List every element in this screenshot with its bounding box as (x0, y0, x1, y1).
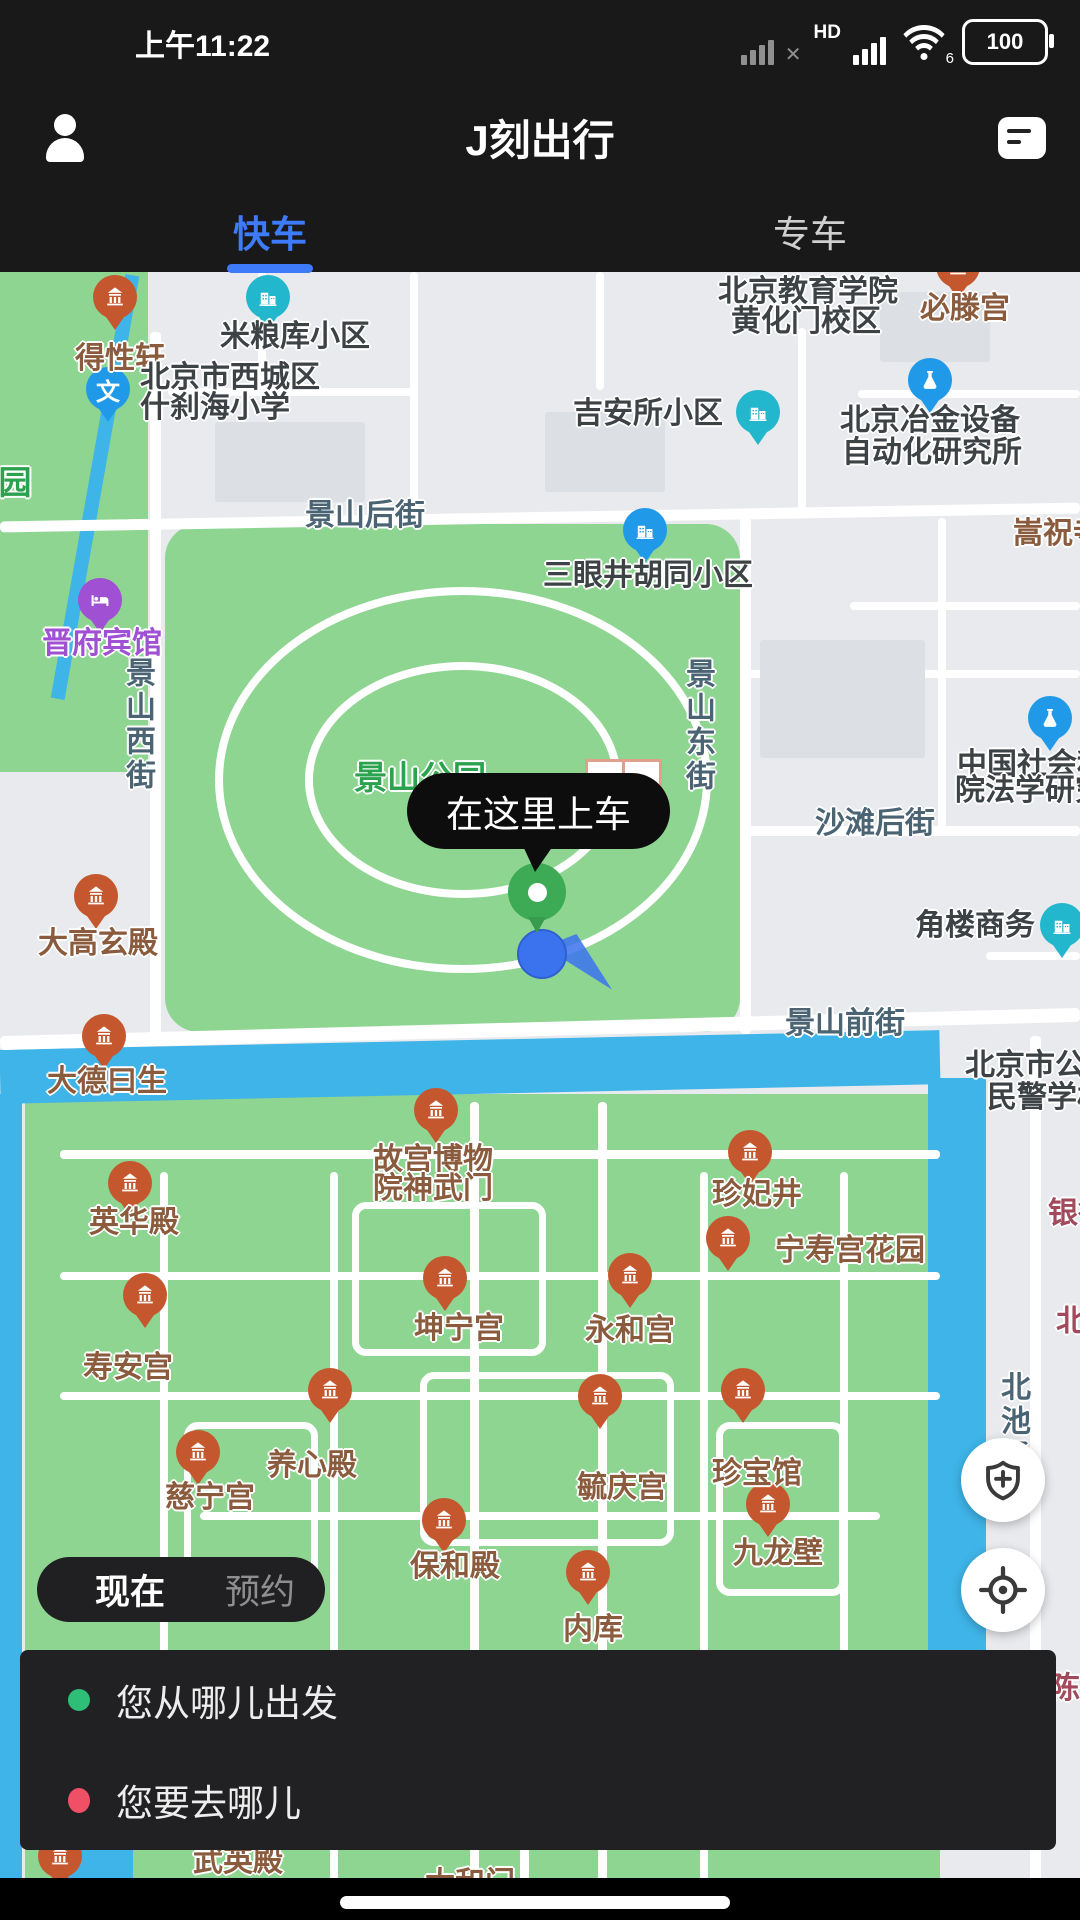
hd-badge: HD (814, 23, 841, 42)
crosshair-icon (978, 1565, 1028, 1615)
origin-input[interactable]: 您从哪儿出发 (20, 1650, 1056, 1750)
poi-pin-temple-icon[interactable] (422, 1498, 466, 1542)
map-label: 景山东街 (675, 658, 719, 794)
poi-pin-temple-icon[interactable] (706, 1216, 750, 1260)
active-tab-underline (227, 264, 313, 273)
profile-person-icon[interactable] (43, 112, 87, 164)
map-label: 珍宝馆 (712, 1448, 802, 1492)
poi-pin-temple-icon[interactable] (74, 874, 118, 918)
current-location-icon (517, 929, 567, 979)
map-road (60, 1150, 940, 1159)
poi-pin-temple-icon[interactable] (423, 1256, 467, 1300)
map-road (850, 602, 1080, 610)
map-building-block (760, 640, 925, 758)
map-label: 慈宁宫 (165, 1472, 255, 1516)
poi-pin-temple-icon[interactable] (123, 1273, 167, 1317)
origin-placeholder: 您从哪儿出发 (116, 1673, 338, 1727)
poi-pin-hotel-icon[interactable] (78, 578, 122, 622)
destination-input[interactable]: 您要去哪儿 (20, 1750, 1056, 1850)
wifi-icon: 6 (898, 25, 950, 65)
map-label: 九龙壁 (733, 1528, 823, 1572)
map-label: 北新 (1056, 1296, 1080, 1340)
map-label: 大德曰生 (47, 1056, 167, 1100)
map-label: 院法学研究 (955, 765, 1080, 809)
map-label: 寿安宫 (83, 1342, 173, 1386)
map-label: 坤宁宫 (414, 1303, 504, 1347)
battery-icon: 100 (962, 19, 1048, 65)
no-service-x-icon: ✕ (785, 45, 802, 65)
map-water-west (0, 1094, 22, 1920)
map-label: 永和宫 (585, 1305, 675, 1349)
map-label: 嵩祝寺 (1013, 508, 1080, 552)
pickup-bubble[interactable]: 在这里上车 (407, 773, 670, 849)
map-label: 角楼商务 (915, 900, 1035, 944)
origin-dot-icon (68, 1689, 90, 1711)
safety-shield-button[interactable] (961, 1438, 1045, 1522)
app-header: J刻出行 (0, 85, 1080, 190)
poi-pin-building-teal-icon[interactable] (1040, 903, 1080, 947)
poi-pin-temple-icon[interactable] (414, 1088, 458, 1132)
wifi6-badge: 6 (946, 50, 954, 67)
locate-me-button[interactable] (961, 1548, 1045, 1632)
map-label: 英华殿 (89, 1197, 179, 1241)
poi-pin-temple-icon[interactable] (176, 1430, 220, 1474)
poi-pin-flask-icon[interactable] (1028, 696, 1072, 740)
map-label: 毓庆宫 (577, 1462, 667, 1506)
map-road (740, 518, 751, 1034)
poi-pin-temple-icon[interactable] (608, 1253, 652, 1297)
map-label: 米粮库小区 (220, 311, 370, 355)
map-label: 珍妃井 (712, 1169, 802, 1213)
map-label: 沙滩后街 (815, 798, 935, 842)
map-label: 必滕宫 (920, 283, 1010, 327)
map-label: 景山后街 (305, 490, 425, 534)
tab-premier[interactable]: 专车 (540, 190, 1080, 272)
map-label: 内库 (563, 1604, 623, 1648)
battery-percent: 100 (987, 29, 1024, 55)
poi-pin-temple-icon[interactable] (308, 1368, 352, 1412)
map-label: 景山西街 (115, 657, 159, 793)
map-label: 大高玄殿 (38, 918, 158, 962)
sim2-signal-icon (853, 37, 886, 65)
map-label: 园 (0, 456, 32, 504)
poi-pin-building-teal-icon[interactable] (736, 390, 780, 434)
status-icons: ✕ HD 6 100 (741, 21, 1048, 65)
shield-plus-icon (980, 1457, 1026, 1503)
map-label: 黄化门校区 (731, 296, 881, 340)
map-road (596, 272, 604, 390)
mode-now-button[interactable]: 现在 (95, 1564, 165, 1615)
messages-chat-icon[interactable] (998, 117, 1046, 159)
poi-pin-temple-icon[interactable] (578, 1374, 622, 1418)
map-label: 院神武门 (373, 1163, 493, 1207)
map-label: 晋府宾馆 (42, 618, 162, 662)
trip-input-sheet: 您从哪儿出发 您要去哪儿 (20, 1650, 1056, 1850)
tab-bar: 快车 专车 (0, 190, 1080, 272)
map-label: 自动化研究所 (842, 427, 1022, 471)
poi-pin-temple-icon[interactable] (93, 275, 137, 319)
poi-pin-building-blue-icon[interactable] (623, 508, 667, 552)
map-label: 景山前街 (785, 998, 905, 1042)
map-label: 宁寿宫花园 (775, 1225, 925, 1269)
destination-dot-icon (68, 1788, 90, 1813)
poi-pin-temple-icon[interactable] (728, 1130, 772, 1174)
map-label: 保和殿 (410, 1541, 500, 1585)
map-label: 吉安所小区 (573, 388, 723, 432)
map-label: 什刹海小学 (140, 382, 290, 426)
status-time: 上午11:22 (135, 21, 270, 65)
destination-placeholder: 您要去哪儿 (116, 1773, 301, 1827)
map-label: 民警学校 (987, 1072, 1080, 1116)
poi-pin-temple-icon[interactable] (566, 1550, 610, 1594)
home-indicator[interactable] (340, 1896, 730, 1909)
map-road (798, 328, 806, 518)
pickup-bubble-tail (523, 846, 553, 872)
tab-express[interactable]: 快车 (0, 190, 540, 272)
page-title: J刻出行 (0, 107, 1080, 168)
sim1-signal-icon (741, 40, 774, 65)
map-label: 养心殿 (267, 1440, 357, 1484)
poi-pin-temple-icon[interactable] (82, 1014, 126, 1058)
time-mode-pill: 现在 预约 (37, 1557, 325, 1622)
poi-pin-temple-icon[interactable] (721, 1368, 765, 1412)
map-label: 三眼井胡同小区 (543, 550, 753, 594)
status-bar: 上午11:22 ✕ HD 6 100 (0, 0, 1080, 85)
map-label: 银行 (1048, 1188, 1080, 1232)
mode-reserve-button[interactable]: 预约 (225, 1564, 295, 1615)
